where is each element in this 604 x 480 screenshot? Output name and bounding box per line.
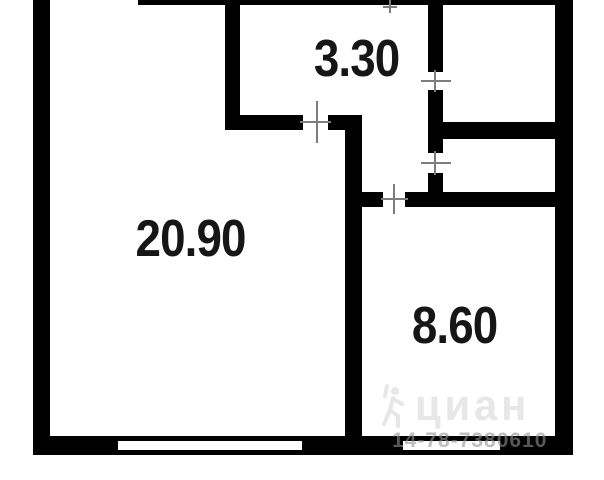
wall-hallway-bottom-west: [225, 115, 303, 130]
room-label-living-room: 20.90: [101, 213, 281, 265]
wall-kitchen-top-west: [362, 192, 383, 207]
room-area-hallway: 3.30: [314, 33, 400, 85]
door-tick-kitchen-horizontal: [381, 198, 408, 200]
wall-outer-top: [138, 0, 573, 5]
wall-outer-right: [555, 0, 573, 455]
wall-closet-bathroom-divider: [443, 122, 555, 139]
room-area-kitchen: 8.60: [412, 300, 498, 352]
cian-person-icon: [378, 384, 408, 428]
door-tick-hallway-horizontal: [300, 121, 331, 123]
window-living-room: [118, 441, 302, 450]
wall-hallway-left: [225, 0, 240, 130]
room-area-living-room: 20.90: [136, 213, 246, 265]
wall-outer-left: [33, 0, 50, 455]
cian-brand-text: циан: [415, 384, 530, 428]
door-tick-closet-horizontal: [421, 80, 451, 82]
watermark-id-text: 14-78-7380610: [392, 430, 547, 451]
wall-closet-left-middle: [428, 90, 443, 153]
cian-watermark: циан: [378, 384, 533, 428]
room-label-hallway: 3.30: [277, 33, 437, 85]
room-label-kitchen: 8.60: [375, 300, 535, 352]
wall-living-kitchen-divider: [345, 115, 362, 455]
wall-closet-left-lower: [428, 173, 443, 192]
door-tick-entry-horizontal: [383, 6, 397, 8]
floorplan-canvas: 20.90 3.30 8.60 циан 14-78-7380610: [0, 0, 604, 480]
wall-kitchen-top-east: [405, 192, 555, 207]
door-tick-bathroom-horizontal: [421, 162, 451, 164]
